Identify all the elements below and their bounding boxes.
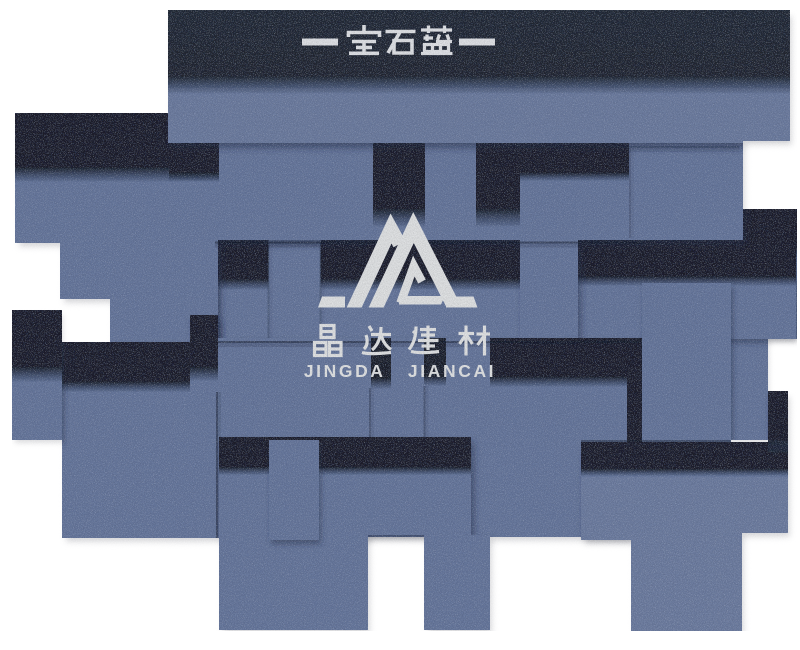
svg-text:JINGDA JIANCAI: JINGDA JIANCAI [304,361,496,381]
